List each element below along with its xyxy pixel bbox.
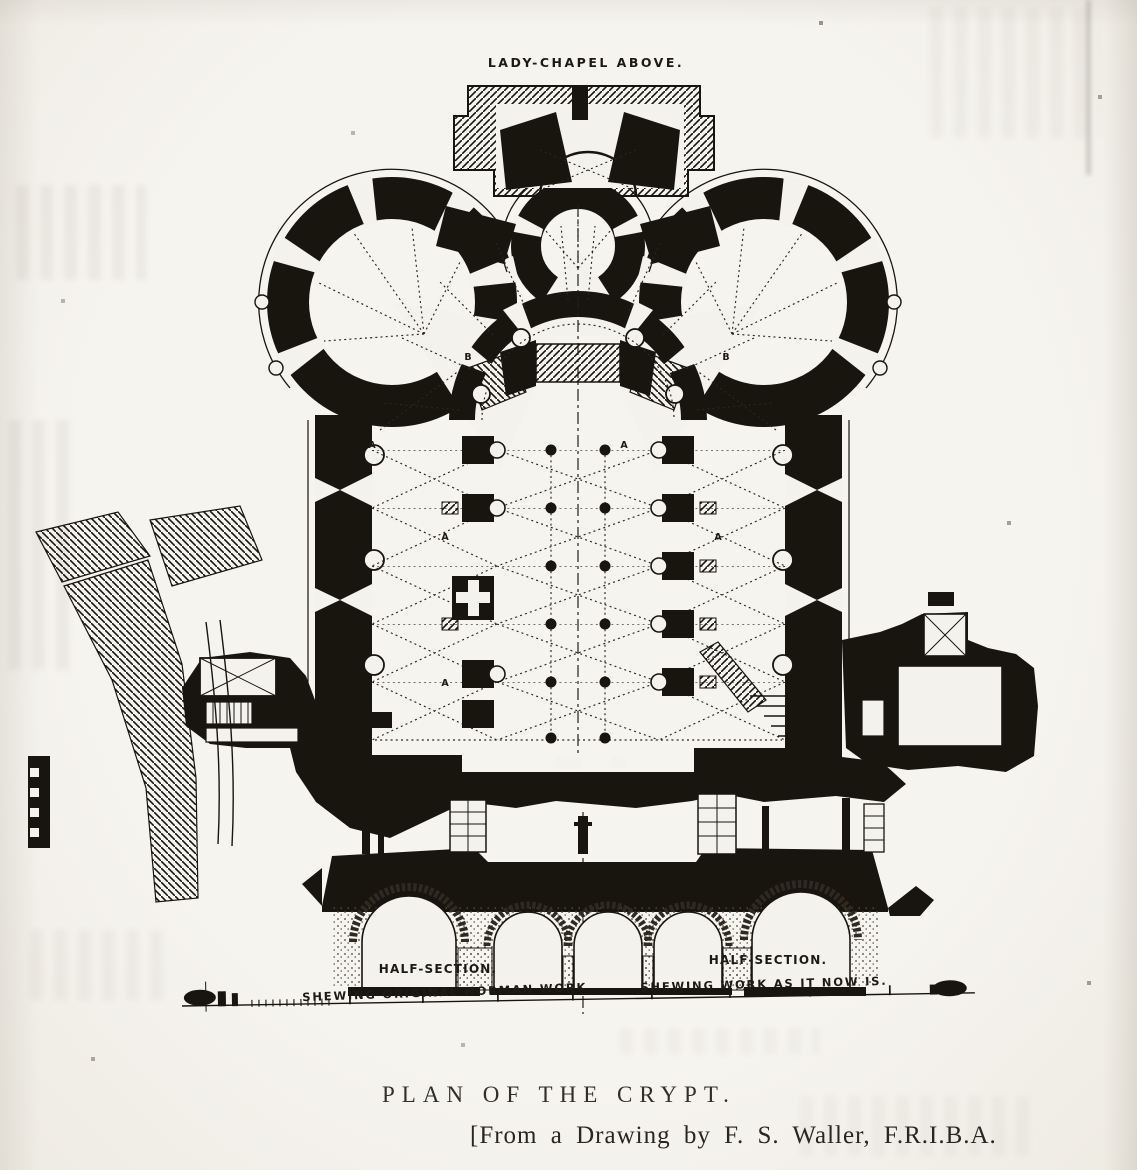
ref-letter-b: B — [722, 352, 729, 363]
half-section-right-title: HALF-SECTION. — [709, 953, 828, 967]
ref-letter-a: A — [441, 678, 449, 689]
figure-title: PLAN OF THE CRYPT. — [382, 1082, 736, 1108]
ref-letter-a: A — [714, 532, 722, 543]
ref-letter-a: A — [368, 440, 376, 451]
scanned-book-page: LADY-CHAPEL ABOVE. — [0, 0, 1137, 1170]
ref-letter-b: B — [464, 352, 471, 363]
central-hall — [372, 436, 785, 744]
ref-letter-a: A — [441, 532, 449, 543]
crypt-plan-figure: LADY-CHAPEL ABOVE. — [0, 0, 1137, 1170]
figure-credit: [From a Drawing by F. S. Waller, F.R.I.B… — [470, 1122, 997, 1150]
half-section-left-title: HALF-SECTION. — [379, 962, 498, 976]
lady-chapel-label: LADY-CHAPEL ABOVE. — [488, 55, 684, 70]
ref-letter-a: A — [620, 440, 628, 451]
lady-chapel: LADY-CHAPEL ABOVE. — [454, 55, 714, 196]
